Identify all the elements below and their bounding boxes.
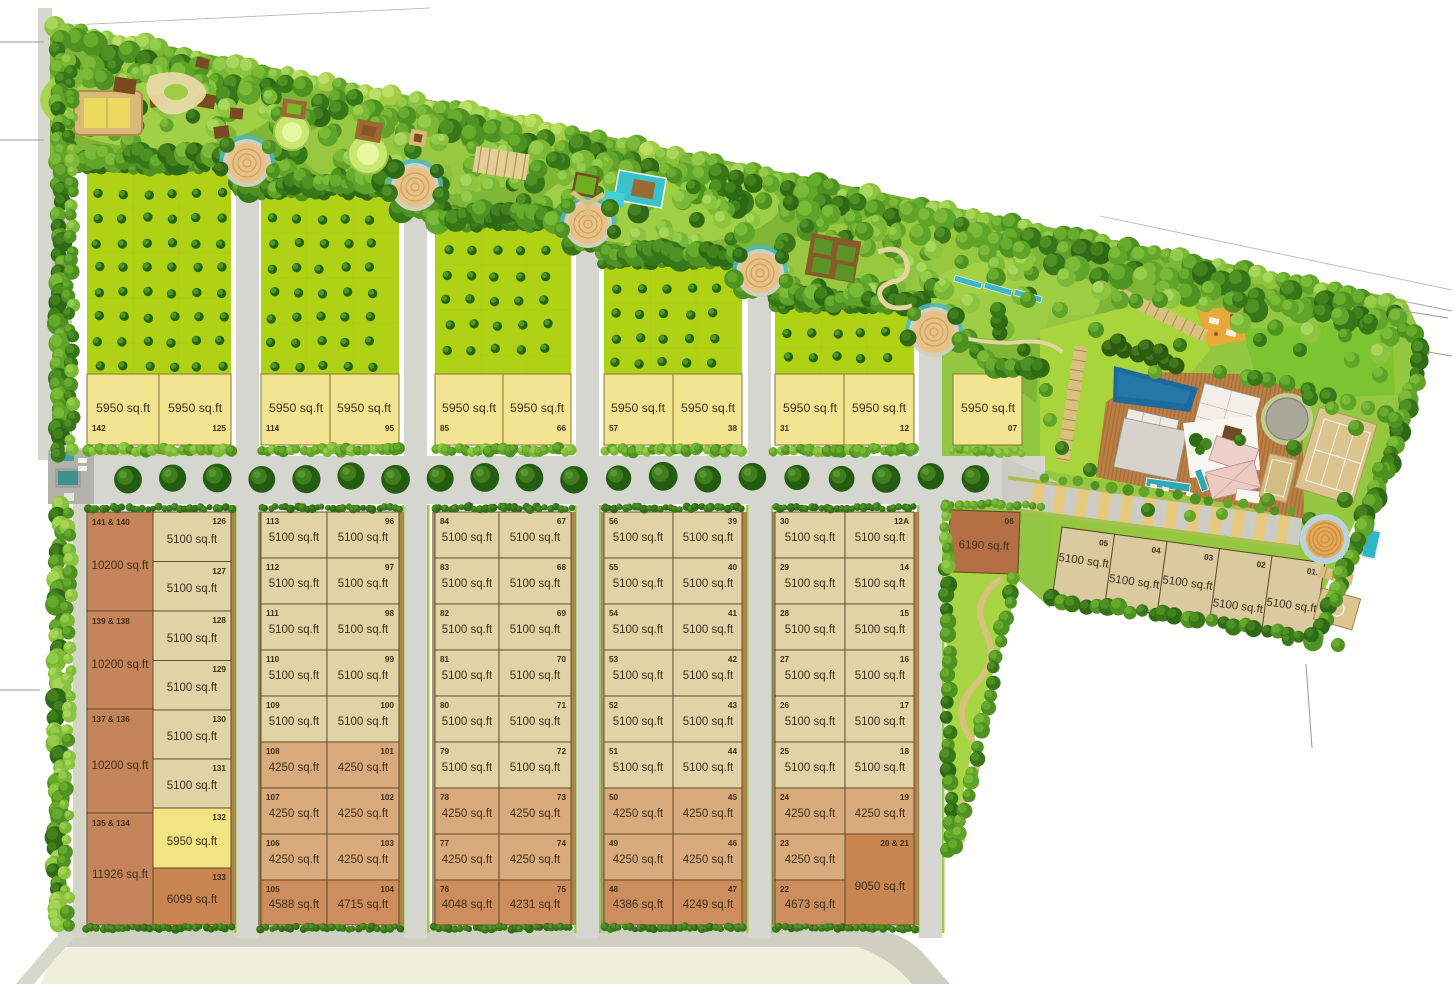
svg-text:12: 12: [900, 424, 910, 433]
svg-text:137 & 136: 137 & 136: [92, 715, 130, 724]
svg-text:5100 sq.ft: 5100 sq.ft: [167, 633, 218, 645]
svg-text:10200 sq.ft: 10200 sq.ft: [92, 760, 150, 772]
svg-text:102: 102: [380, 793, 394, 802]
svg-text:02: 02: [1256, 560, 1267, 570]
svg-text:38: 38: [728, 424, 738, 433]
svg-text:12A: 12A: [894, 517, 909, 526]
svg-text:75: 75: [557, 885, 567, 894]
svg-text:39: 39: [728, 517, 738, 526]
svg-text:129: 129: [212, 665, 226, 674]
svg-text:67: 67: [557, 517, 567, 526]
svg-text:07: 07: [1008, 424, 1018, 433]
svg-text:19: 19: [900, 793, 910, 802]
svg-text:29: 29: [780, 563, 790, 572]
svg-text:5950 sq.ft: 5950 sq.ft: [269, 401, 324, 415]
svg-text:4715 sq.ft: 4715 sq.ft: [338, 899, 389, 911]
svg-text:43: 43: [728, 701, 738, 710]
svg-text:73: 73: [557, 793, 567, 802]
svg-text:4250 sq.ft: 4250 sq.ft: [613, 808, 664, 820]
svg-text:128: 128: [212, 616, 226, 625]
svg-text:16: 16: [900, 655, 910, 664]
svg-text:109: 109: [266, 701, 280, 710]
svg-text:5100 sq.ft: 5100 sq.ft: [167, 534, 218, 546]
svg-text:110: 110: [266, 655, 280, 664]
svg-text:99: 99: [385, 655, 395, 664]
svg-text:5100 sq.ft: 5100 sq.ft: [683, 532, 734, 544]
svg-text:5950 sq.ft: 5950 sq.ft: [783, 401, 838, 415]
svg-text:127: 127: [212, 567, 226, 576]
svg-text:4386 sq.ft: 4386 sq.ft: [613, 899, 664, 911]
svg-text:4048 sq.ft: 4048 sq.ft: [442, 899, 493, 911]
svg-text:103: 103: [380, 839, 394, 848]
svg-text:5100 sq.ft: 5100 sq.ft: [855, 578, 906, 590]
svg-text:31: 31: [780, 424, 790, 433]
svg-text:4250 sq.ft: 4250 sq.ft: [683, 854, 734, 866]
svg-text:5100 sq.ft: 5100 sq.ft: [683, 670, 734, 682]
svg-text:5100 sq.ft: 5100 sq.ft: [785, 670, 836, 682]
svg-text:4231 sq.ft: 4231 sq.ft: [510, 899, 561, 911]
svg-text:17: 17: [900, 701, 910, 710]
svg-text:57: 57: [609, 424, 619, 433]
svg-text:5100 sq.ft: 5100 sq.ft: [167, 731, 218, 743]
svg-text:51: 51: [609, 747, 619, 756]
svg-text:20 & 21: 20 & 21: [880, 839, 909, 848]
svg-text:5100 sq.ft: 5100 sq.ft: [338, 578, 389, 590]
svg-text:5100 sq.ft: 5100 sq.ft: [269, 716, 320, 728]
svg-text:5100 sq.ft: 5100 sq.ft: [785, 624, 836, 636]
svg-text:5100 sq.ft: 5100 sq.ft: [613, 762, 664, 774]
svg-text:41: 41: [728, 609, 738, 618]
svg-text:50: 50: [609, 793, 619, 802]
svg-text:71: 71: [557, 701, 567, 710]
svg-text:45: 45: [728, 793, 738, 802]
svg-text:69: 69: [557, 609, 567, 618]
svg-text:142: 142: [92, 424, 106, 433]
svg-text:5100 sq.ft: 5100 sq.ft: [613, 578, 664, 590]
svg-text:5100 sq.ft: 5100 sq.ft: [855, 716, 906, 728]
svg-text:131: 131: [212, 764, 226, 773]
svg-text:4250 sq.ft: 4250 sq.ft: [855, 808, 906, 820]
svg-text:55: 55: [609, 563, 619, 572]
svg-text:5100 sq.ft: 5100 sq.ft: [613, 532, 664, 544]
svg-text:24: 24: [780, 793, 790, 802]
svg-text:03: 03: [1204, 553, 1215, 563]
svg-text:04: 04: [1151, 545, 1162, 555]
svg-text:53: 53: [609, 655, 619, 664]
svg-text:5100 sq.ft: 5100 sq.ft: [442, 670, 493, 682]
svg-text:5950 sq.ft: 5950 sq.ft: [510, 401, 565, 415]
svg-text:105: 105: [266, 885, 280, 894]
svg-text:23: 23: [780, 839, 790, 848]
svg-text:5950 sq.ft: 5950 sq.ft: [961, 401, 1016, 415]
svg-text:100: 100: [380, 701, 394, 710]
svg-text:5100 sq.ft: 5100 sq.ft: [683, 762, 734, 774]
svg-text:133: 133: [212, 873, 226, 882]
svg-text:46: 46: [728, 839, 738, 848]
svg-text:4250 sq.ft: 4250 sq.ft: [442, 854, 493, 866]
svg-text:108: 108: [266, 747, 280, 756]
svg-text:5100 sq.ft: 5100 sq.ft: [442, 624, 493, 636]
svg-text:47: 47: [728, 885, 738, 894]
svg-text:5100 sq.ft: 5100 sq.ft: [269, 578, 320, 590]
svg-text:4250 sq.ft: 4250 sq.ft: [338, 762, 389, 774]
svg-text:79: 79: [440, 747, 450, 756]
svg-text:98: 98: [385, 609, 395, 618]
svg-text:5100 sq.ft: 5100 sq.ft: [510, 670, 561, 682]
svg-text:5100 sq.ft: 5100 sq.ft: [613, 670, 664, 682]
svg-text:4250 sq.ft: 4250 sq.ft: [510, 808, 561, 820]
svg-text:6099 sq.ft: 6099 sq.ft: [167, 894, 218, 906]
svg-text:112: 112: [266, 563, 280, 572]
svg-text:125: 125: [212, 424, 226, 433]
svg-text:40: 40: [728, 563, 738, 572]
svg-text:5100 sq.ft: 5100 sq.ft: [613, 624, 664, 636]
svg-text:68: 68: [557, 563, 567, 572]
svg-text:107: 107: [266, 793, 280, 802]
svg-text:5100 sq.ft: 5100 sq.ft: [510, 532, 561, 544]
svg-text:141 & 140: 141 & 140: [92, 518, 130, 527]
svg-text:28: 28: [780, 609, 790, 618]
svg-text:5100 sq.ft: 5100 sq.ft: [442, 532, 493, 544]
svg-text:25: 25: [780, 747, 790, 756]
svg-text:5950 sq.ft: 5950 sq.ft: [167, 836, 218, 848]
svg-text:80: 80: [440, 701, 450, 710]
svg-text:113: 113: [266, 517, 280, 526]
svg-text:22: 22: [780, 885, 790, 894]
svg-text:5100 sq.ft: 5100 sq.ft: [338, 624, 389, 636]
svg-text:5100 sq.ft: 5100 sq.ft: [510, 762, 561, 774]
svg-text:10200 sq.ft: 10200 sq.ft: [92, 659, 150, 671]
svg-text:5100 sq.ft: 5100 sq.ft: [442, 578, 493, 590]
svg-text:5100 sq.ft: 5100 sq.ft: [510, 716, 561, 728]
svg-text:01.: 01.: [1306, 567, 1319, 577]
svg-text:111: 111: [266, 609, 279, 618]
svg-text:11926 sq.ft: 11926 sq.ft: [92, 869, 149, 881]
svg-text:5100 sq.ft: 5100 sq.ft: [167, 682, 218, 694]
svg-text:78: 78: [440, 793, 450, 802]
svg-text:5100 sq.ft: 5100 sq.ft: [510, 624, 561, 636]
svg-text:4250 sq.ft: 4250 sq.ft: [785, 854, 836, 866]
svg-text:5100 sq.ft: 5100 sq.ft: [338, 716, 389, 728]
svg-text:52: 52: [609, 701, 619, 710]
svg-text:5100 sq.ft: 5100 sq.ft: [269, 624, 320, 636]
svg-text:5950 sq.ft: 5950 sq.ft: [681, 401, 736, 415]
svg-text:5100 sq.ft: 5100 sq.ft: [785, 532, 836, 544]
svg-text:5100 sq.ft: 5100 sq.ft: [785, 716, 836, 728]
svg-text:44: 44: [728, 747, 738, 756]
svg-text:5100 sq.ft: 5100 sq.ft: [167, 583, 218, 595]
svg-text:42: 42: [728, 655, 738, 664]
svg-text:4250 sq.ft: 4250 sq.ft: [269, 854, 320, 866]
svg-text:06: 06: [1004, 517, 1014, 526]
svg-text:4673 sq.ft: 4673 sq.ft: [785, 899, 836, 911]
svg-text:48: 48: [609, 885, 619, 894]
svg-text:5100 sq.ft: 5100 sq.ft: [855, 624, 906, 636]
svg-text:5100 sq.ft: 5100 sq.ft: [167, 780, 218, 792]
svg-text:5950 sq.ft: 5950 sq.ft: [611, 401, 666, 415]
svg-text:104: 104: [380, 885, 394, 894]
svg-text:5100 sq.ft: 5100 sq.ft: [683, 716, 734, 728]
svg-text:5950 sq.ft: 5950 sq.ft: [96, 401, 151, 415]
svg-text:5100 sq.ft: 5100 sq.ft: [269, 532, 320, 544]
svg-text:4250 sq.ft: 4250 sq.ft: [269, 808, 320, 820]
svg-text:70: 70: [557, 655, 567, 664]
svg-text:96: 96: [385, 517, 395, 526]
svg-text:114: 114: [266, 424, 280, 433]
svg-text:18: 18: [900, 747, 910, 756]
svg-text:26: 26: [780, 701, 790, 710]
svg-text:4250 sq.ft: 4250 sq.ft: [683, 808, 734, 820]
svg-text:81: 81: [440, 655, 450, 664]
svg-text:5100 sq.ft: 5100 sq.ft: [338, 670, 389, 682]
svg-text:132: 132: [212, 813, 226, 822]
svg-text:5950 sq.ft: 5950 sq.ft: [168, 401, 223, 415]
svg-text:5100 sq.ft: 5100 sq.ft: [683, 578, 734, 590]
svg-text:74: 74: [557, 839, 567, 848]
svg-text:106: 106: [266, 839, 280, 848]
svg-text:95: 95: [385, 424, 395, 433]
svg-text:5100 sq.ft: 5100 sq.ft: [338, 532, 389, 544]
svg-text:6190 sq.ft: 6190 sq.ft: [958, 539, 1010, 553]
svg-text:4250 sq.ft: 4250 sq.ft: [510, 854, 561, 866]
svg-text:5950 sq.ft: 5950 sq.ft: [442, 401, 497, 415]
svg-text:54: 54: [609, 609, 619, 618]
svg-text:5100 sq.ft: 5100 sq.ft: [442, 762, 493, 774]
svg-text:84: 84: [440, 517, 450, 526]
svg-text:4250 sq.ft: 4250 sq.ft: [269, 762, 320, 774]
svg-text:9050 sq.ft: 9050 sq.ft: [855, 881, 906, 893]
svg-text:82: 82: [440, 609, 450, 618]
svg-text:4250 sq.ft: 4250 sq.ft: [785, 808, 836, 820]
svg-text:4250 sq.ft: 4250 sq.ft: [338, 808, 389, 820]
svg-text:5100 sq.ft: 5100 sq.ft: [855, 670, 906, 682]
svg-text:5100 sq.ft: 5100 sq.ft: [855, 532, 906, 544]
svg-text:135 & 134: 135 & 134: [92, 819, 130, 828]
svg-text:4250 sq.ft: 4250 sq.ft: [613, 854, 664, 866]
svg-text:5100 sq.ft: 5100 sq.ft: [269, 670, 320, 682]
svg-text:139 & 138: 139 & 138: [92, 617, 130, 626]
svg-text:4250 sq.ft: 4250 sq.ft: [338, 854, 389, 866]
svg-text:5100 sq.ft: 5100 sq.ft: [785, 578, 836, 590]
svg-text:5100 sq.ft: 5100 sq.ft: [510, 578, 561, 590]
svg-text:5950 sq.ft: 5950 sq.ft: [852, 401, 907, 415]
svg-text:15: 15: [900, 609, 910, 618]
svg-text:05: 05: [1098, 538, 1109, 548]
svg-text:5100 sq.ft: 5100 sq.ft: [442, 716, 493, 728]
svg-text:5100 sq.ft: 5100 sq.ft: [855, 762, 906, 774]
svg-text:85: 85: [440, 424, 450, 433]
svg-text:66: 66: [557, 424, 567, 433]
svg-text:56: 56: [609, 517, 619, 526]
svg-text:4249 sq.ft: 4249 sq.ft: [683, 899, 734, 911]
svg-text:5100 sq.ft: 5100 sq.ft: [785, 762, 836, 774]
svg-text:4588 sq.ft: 4588 sq.ft: [269, 899, 320, 911]
svg-text:4250 sq.ft: 4250 sq.ft: [442, 808, 493, 820]
svg-text:5100 sq.ft: 5100 sq.ft: [683, 624, 734, 636]
svg-text:27: 27: [780, 655, 790, 664]
svg-text:49: 49: [609, 839, 619, 848]
svg-text:72: 72: [557, 747, 567, 756]
svg-text:130: 130: [212, 715, 226, 724]
svg-text:10200 sq.ft: 10200 sq.ft: [92, 560, 150, 572]
svg-text:83: 83: [440, 563, 450, 572]
svg-text:14: 14: [900, 563, 910, 572]
svg-text:126: 126: [212, 517, 226, 526]
svg-text:5100 sq.ft: 5100 sq.ft: [613, 716, 664, 728]
svg-text:5950 sq.ft: 5950 sq.ft: [337, 401, 392, 415]
svg-text:77: 77: [440, 839, 450, 848]
svg-text:30: 30: [780, 517, 790, 526]
svg-text:101: 101: [380, 747, 394, 756]
svg-text:76: 76: [440, 885, 450, 894]
svg-text:97: 97: [385, 563, 395, 572]
